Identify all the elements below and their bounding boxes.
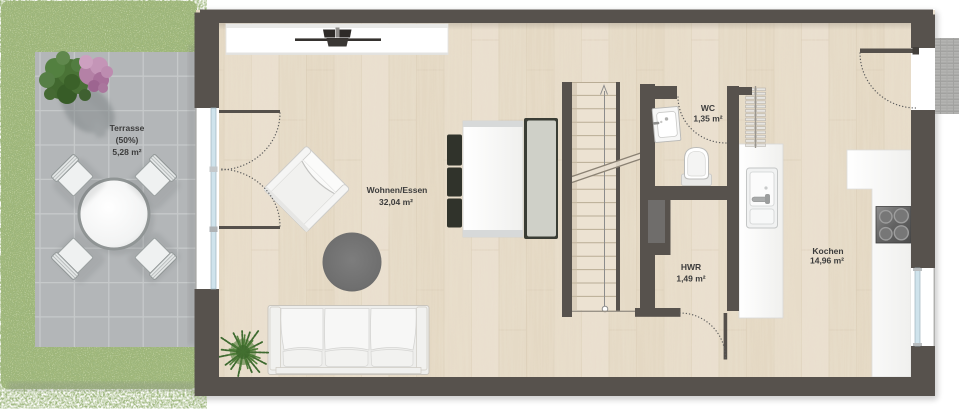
svg-text:HWR: HWR (681, 262, 701, 272)
svg-text:1,35 m²: 1,35 m² (693, 114, 722, 124)
svg-text:Kochen: Kochen (812, 246, 843, 256)
svg-text:5,28 m²: 5,28 m² (112, 147, 141, 157)
svg-text:(50%): (50%) (116, 135, 139, 145)
svg-text:Terrasse: Terrasse (110, 123, 145, 133)
svg-text:14,96 m²: 14,96 m² (810, 256, 844, 266)
svg-text:32,04 m²: 32,04 m² (379, 197, 413, 207)
svg-text:1,49 m²: 1,49 m² (676, 274, 705, 284)
svg-text:Wohnen/Essen: Wohnen/Essen (367, 185, 428, 195)
svg-text:WC: WC (701, 103, 715, 113)
